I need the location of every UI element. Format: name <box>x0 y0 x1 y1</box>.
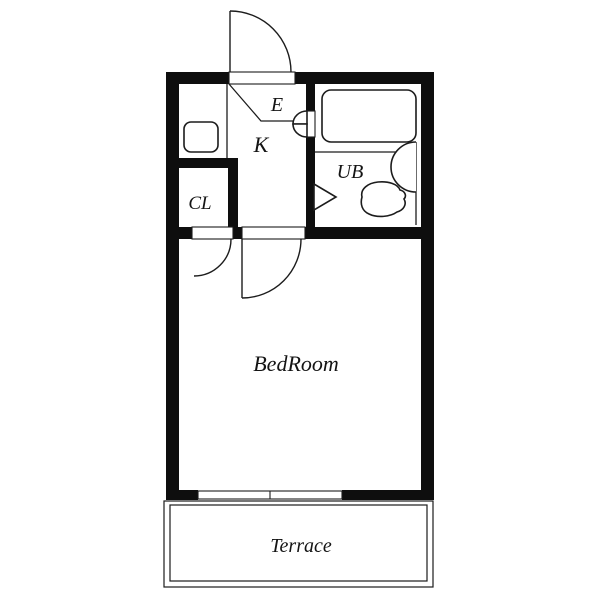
floor-plan: E K UB CL BedRoom Terrace <box>0 0 600 600</box>
kitchen-label: K <box>253 132 270 157</box>
toilet-icon <box>361 182 405 217</box>
entrance-label: E <box>270 94 283 116</box>
wall-mid-left-pier <box>179 227 192 239</box>
kitchen-sink-icon <box>184 122 218 152</box>
wall-mid-pier <box>233 227 242 239</box>
wall-bottom-left-pier <box>166 490 198 500</box>
bedroom-label: BedRoom <box>253 351 339 376</box>
floor-plan-drawing: E K UB CL BedRoom Terrace <box>0 0 600 600</box>
closet-label: CL <box>188 193 211 214</box>
room-door-opening <box>242 227 305 239</box>
wall-right <box>421 72 434 500</box>
bathtub-icon <box>322 90 416 142</box>
wall-left <box>166 72 179 500</box>
closet-door-opening <box>192 227 233 239</box>
wall-kitchen-bath-lower <box>306 137 315 227</box>
unit-bath-label: UB <box>337 161 364 183</box>
terrace-label: Terrace <box>270 535 332 557</box>
wall-mid-right <box>305 227 421 239</box>
entrance-door-opening <box>229 72 295 84</box>
background <box>0 0 600 600</box>
wall-kitchen-bath-upper <box>306 84 315 111</box>
wall-top-right <box>295 72 434 84</box>
wall-bottom-right-pier <box>342 490 434 500</box>
wall-closet-right <box>228 158 238 227</box>
